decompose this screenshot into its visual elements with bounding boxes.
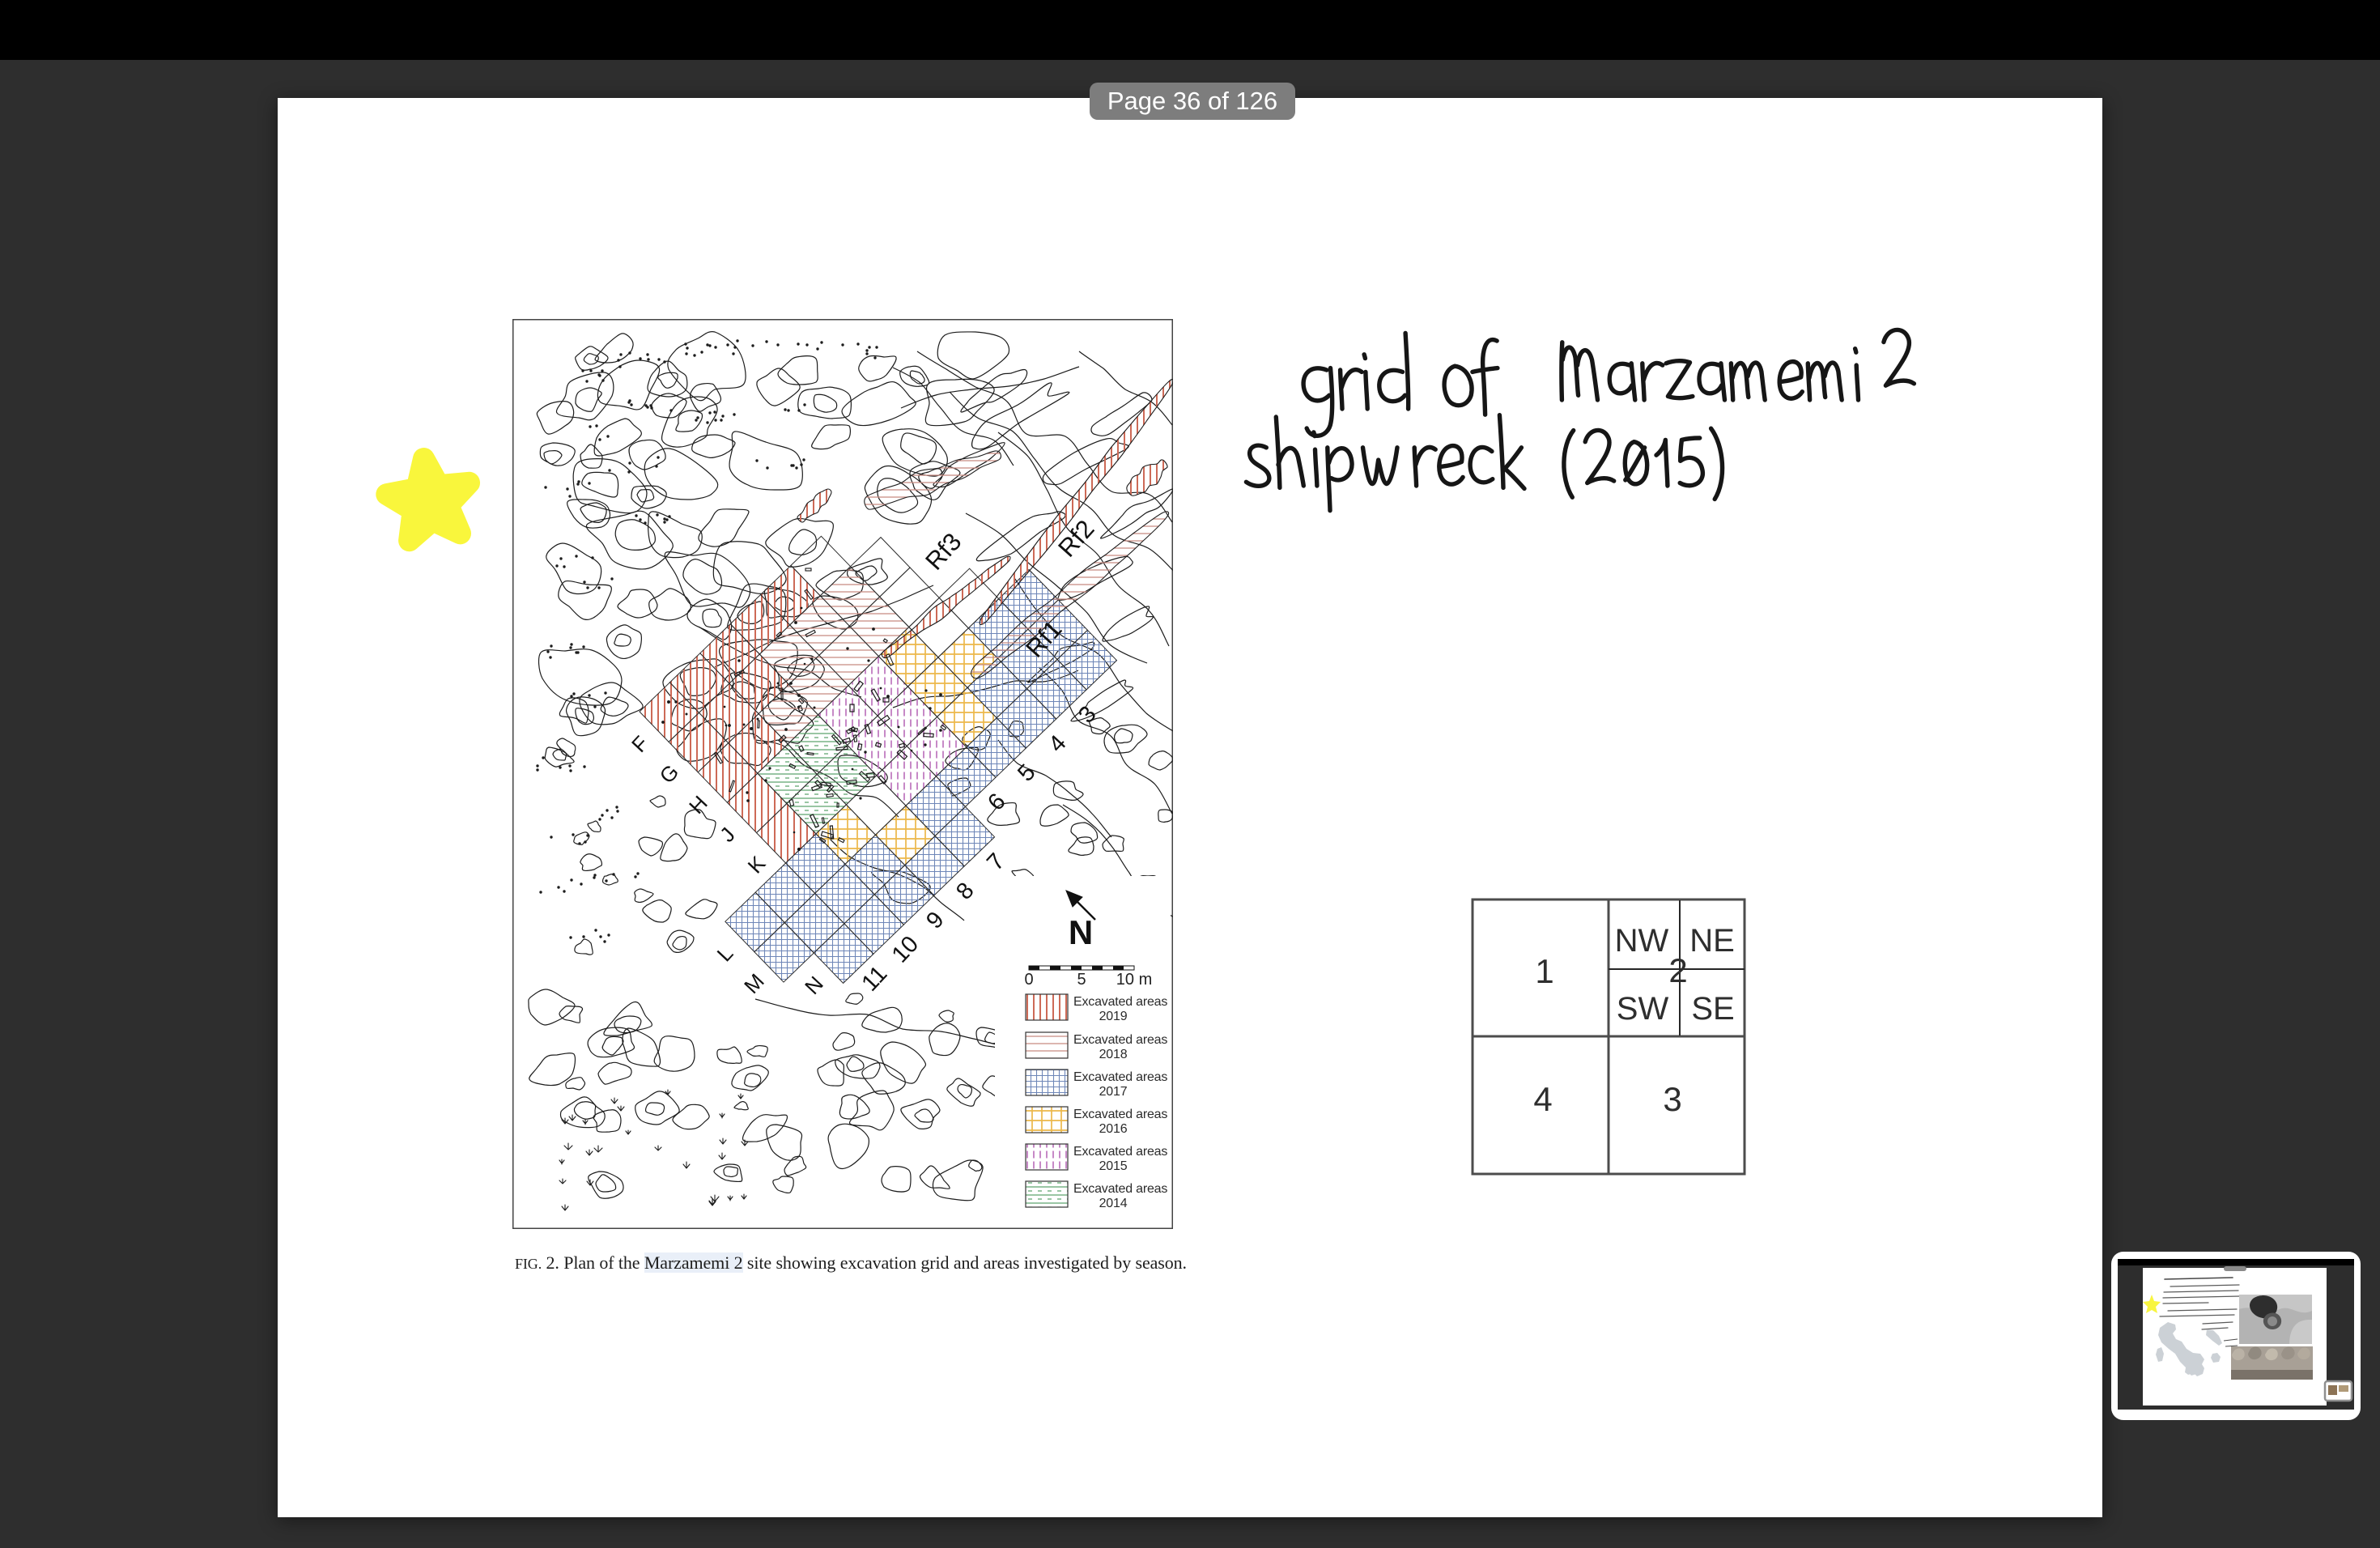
- svg-text:2016: 2016: [1099, 1122, 1128, 1136]
- svg-text:5: 5: [1077, 971, 1086, 989]
- svg-text:2: 2: [1668, 951, 1687, 989]
- svg-text:2018: 2018: [1099, 1048, 1128, 1061]
- svg-text:2019: 2019: [1099, 1010, 1128, 1023]
- svg-text:3: 3: [1663, 1080, 1681, 1118]
- svg-text:SE: SE: [1691, 991, 1734, 1027]
- svg-text:Excavated areas: Excavated areas: [1073, 1108, 1167, 1121]
- svg-text:2015: 2015: [1099, 1159, 1128, 1173]
- svg-text:SW: SW: [1617, 991, 1669, 1027]
- svg-text:2014: 2014: [1099, 1197, 1128, 1210]
- svg-text:Excavated areas: Excavated areas: [1073, 1033, 1167, 1047]
- svg-text:Excavated areas: Excavated areas: [1073, 1070, 1167, 1084]
- svg-text:Excavated areas: Excavated areas: [1073, 1182, 1167, 1196]
- svg-text:NW: NW: [1615, 923, 1669, 959]
- svg-text:10 m: 10 m: [1116, 971, 1152, 989]
- svg-text:2017: 2017: [1099, 1085, 1128, 1099]
- svg-text:4: 4: [1533, 1080, 1552, 1118]
- svg-text:NE: NE: [1689, 923, 1735, 959]
- svg-text:N: N: [1069, 913, 1093, 951]
- svg-text:0: 0: [1024, 971, 1033, 989]
- svg-text:1: 1: [1535, 952, 1553, 990]
- svg-text:Excavated areas: Excavated areas: [1073, 995, 1167, 1009]
- svg-text:Excavated areas: Excavated areas: [1073, 1145, 1167, 1159]
